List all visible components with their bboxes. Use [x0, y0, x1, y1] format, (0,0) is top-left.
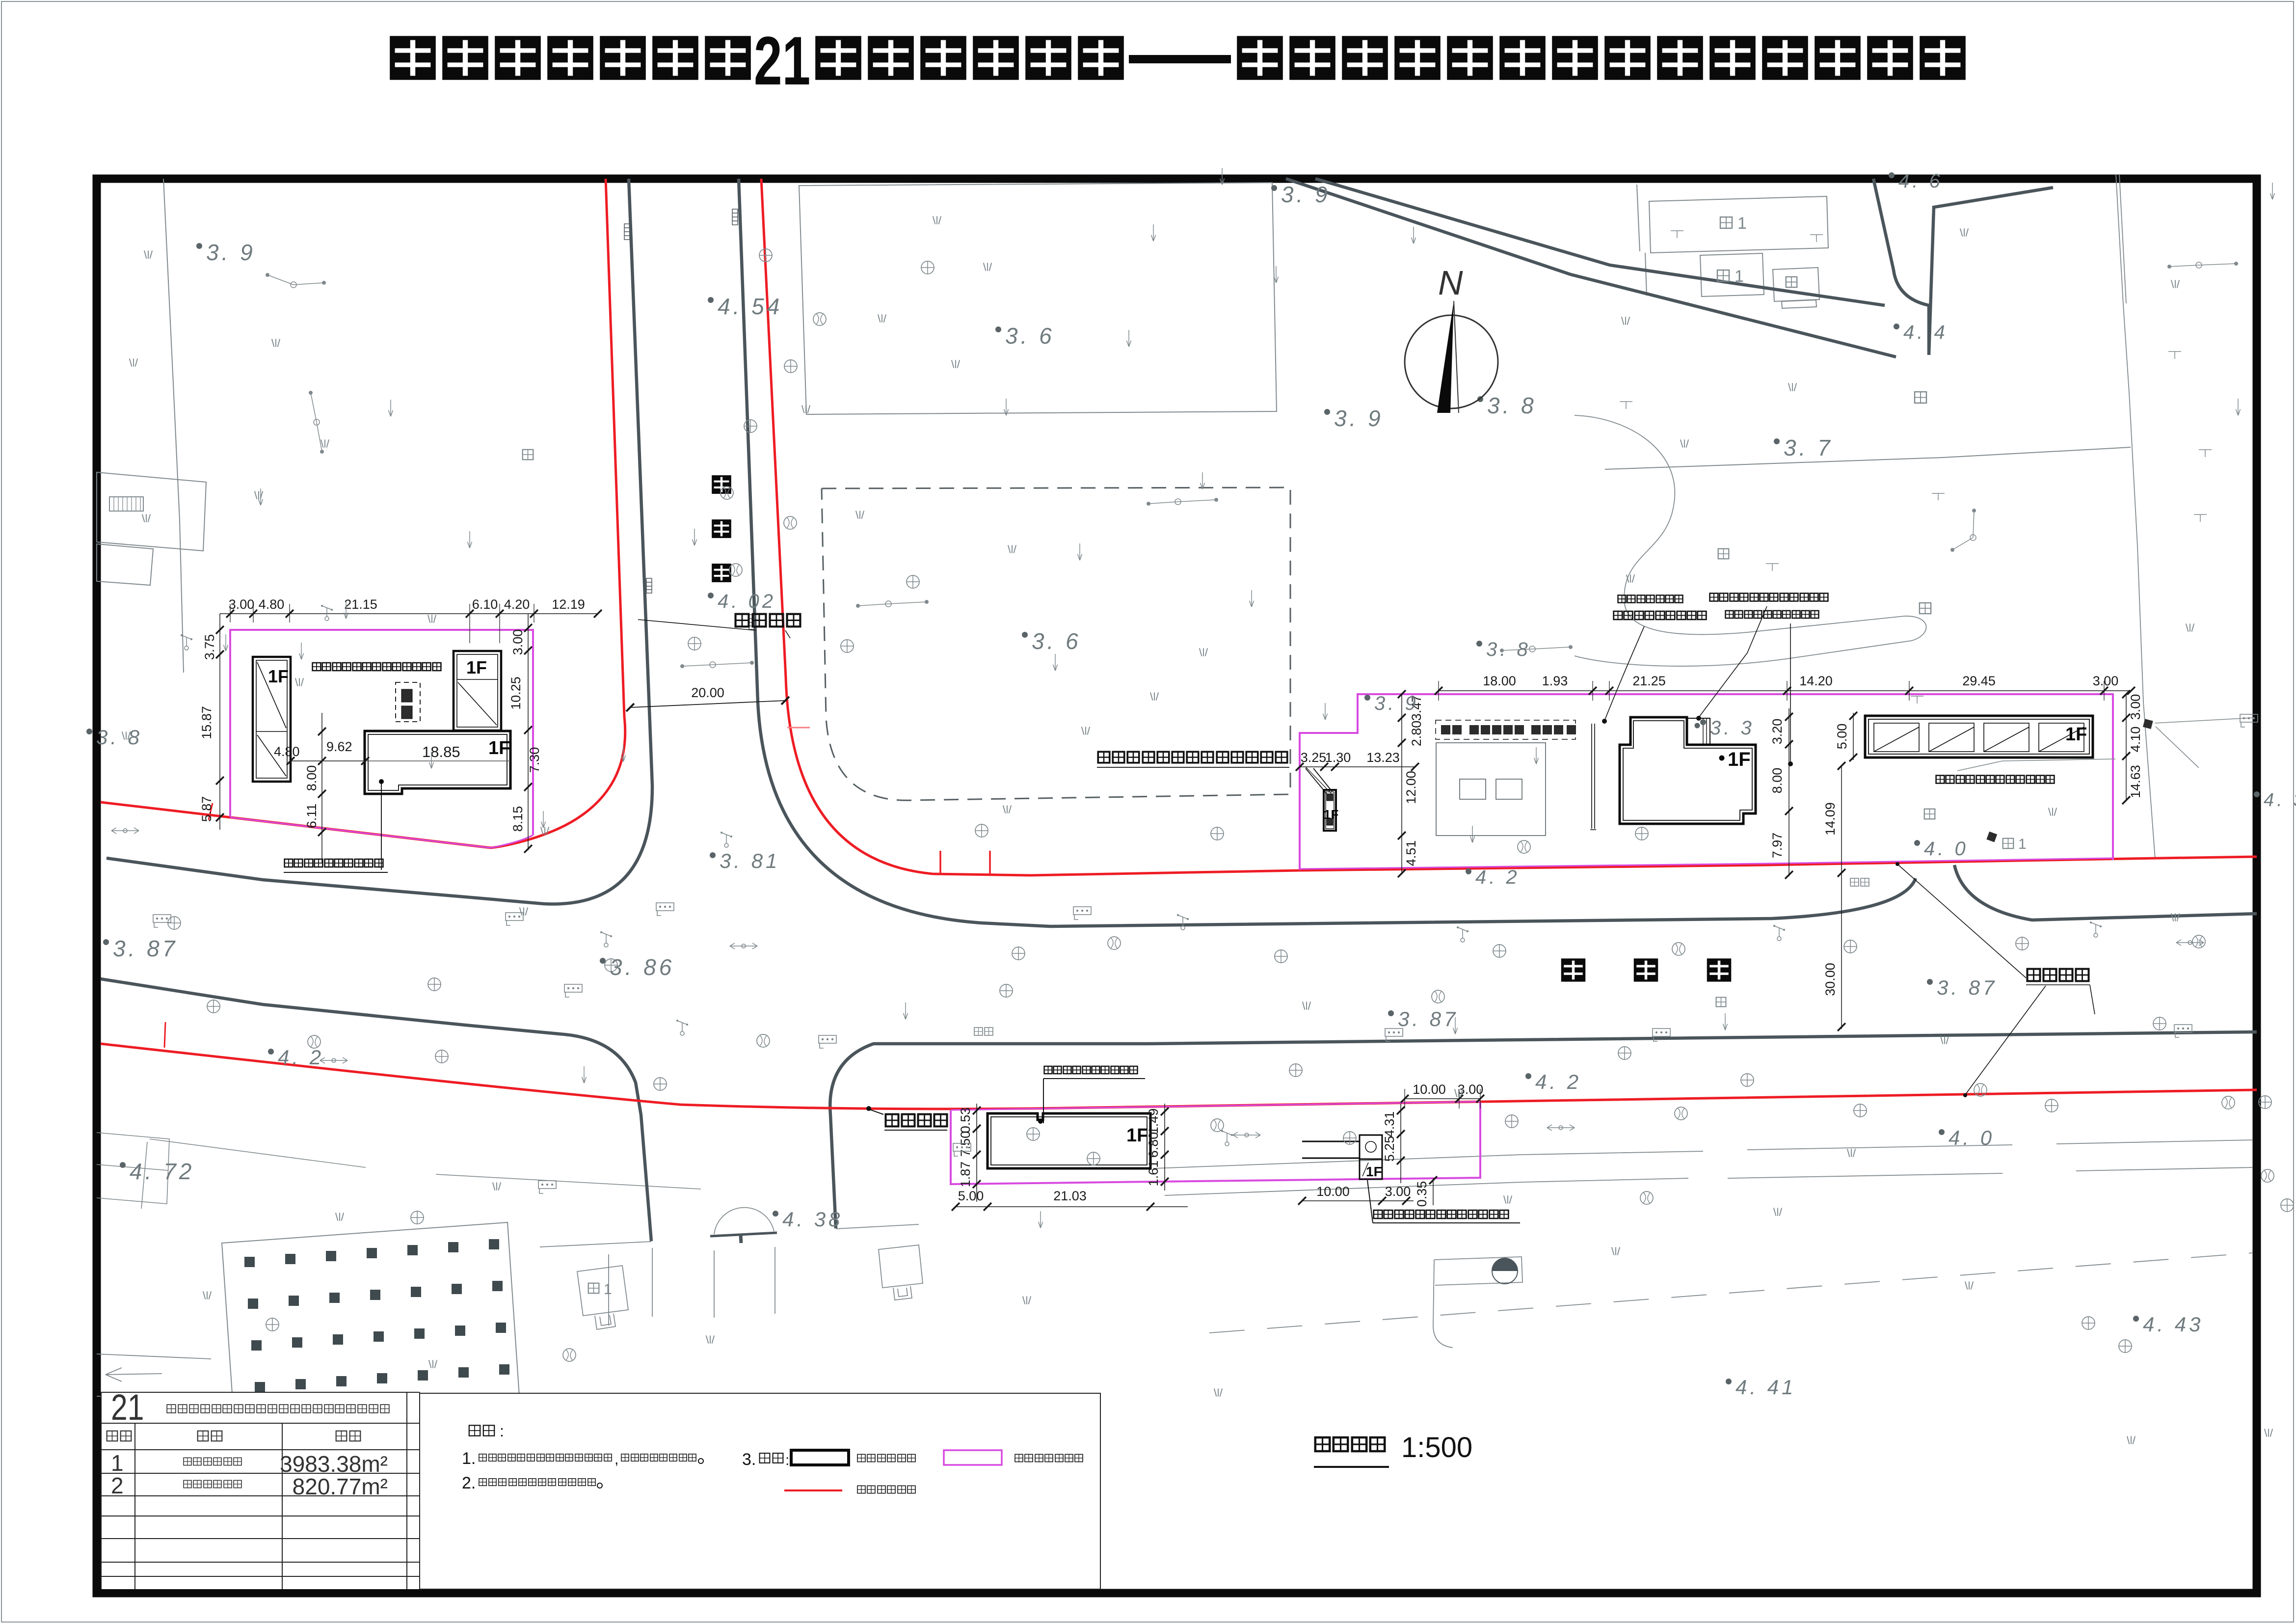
svg-text:2.: 2. [462, 1474, 476, 1492]
svg-text:3.00: 3.00 [1385, 1184, 1411, 1199]
svg-text:,: , [614, 1451, 618, 1467]
svg-text:8.15: 8.15 [510, 806, 525, 832]
svg-text:4. 43: 4. 43 [2143, 1313, 2203, 1336]
svg-text:1.87: 1.87 [958, 1162, 973, 1188]
svg-text:4. 3: 4. 3 [2264, 790, 2296, 811]
svg-text:3.: 3. [742, 1450, 756, 1469]
svg-text:4.31: 4.31 [1382, 1111, 1397, 1137]
svg-text:7.30: 7.30 [527, 747, 542, 773]
svg-text:1F: 1F [1366, 1164, 1382, 1179]
svg-text:1F: 1F [1324, 807, 1338, 822]
svg-text:30.00: 30.00 [1823, 963, 1838, 996]
svg-text:18.00: 18.00 [1483, 674, 1516, 688]
svg-text:1F: 1F [268, 666, 289, 686]
svg-text:3. 87: 3. 87 [113, 936, 178, 961]
svg-text:3. 87: 3. 87 [1937, 976, 1997, 999]
svg-text:3. 8: 3. 8 [1486, 639, 1531, 660]
svg-text:14.63: 14.63 [2128, 765, 2143, 798]
svg-text:3.75: 3.75 [202, 634, 217, 660]
svg-text:1.93: 1.93 [1542, 674, 1568, 688]
svg-text:3. 6: 3. 6 [1032, 628, 1081, 654]
svg-text:9.62: 9.62 [326, 739, 352, 754]
svg-text:4. 2: 4. 2 [278, 1046, 324, 1069]
svg-text:21.03: 21.03 [1053, 1189, 1087, 1203]
svg-text:12.19: 12.19 [552, 597, 585, 612]
svg-text:4. 02: 4. 02 [718, 591, 776, 612]
svg-text:21: 21 [754, 23, 810, 100]
svg-text:5.00: 5.00 [1835, 724, 1849, 750]
svg-text:3. 9: 3. 9 [1334, 406, 1384, 431]
svg-text:3. 9: 3. 9 [1281, 182, 1331, 207]
svg-text:3.20: 3.20 [1770, 719, 1785, 745]
svg-text:1: 1 [2018, 836, 2027, 852]
svg-text:3. 81: 3. 81 [720, 849, 780, 872]
svg-text:21: 21 [111, 1387, 144, 1428]
svg-text:29.45: 29.45 [1962, 674, 1996, 688]
svg-text:4. 0: 4. 0 [1924, 838, 1969, 860]
svg-text:20.00: 20.00 [691, 685, 724, 700]
svg-text:14.20: 14.20 [1799, 674, 1833, 688]
svg-text:3.00: 3.00 [510, 629, 525, 655]
svg-text:1F: 1F [1728, 749, 1751, 770]
svg-text:13.23: 13.23 [1366, 750, 1400, 765]
svg-text:4. 2: 4. 2 [1535, 1070, 1581, 1093]
svg-text:12.00: 12.00 [1404, 771, 1418, 804]
svg-text:3. 9: 3. 9 [206, 240, 256, 265]
svg-text:4. 6: 4. 6 [1898, 170, 1943, 192]
svg-text:0.53: 0.53 [958, 1108, 973, 1134]
svg-text:1.: 1. [462, 1449, 476, 1468]
svg-text:3.25: 3.25 [1301, 750, 1327, 765]
svg-text:18.85: 18.85 [422, 743, 460, 760]
svg-text:3. 3: 3. 3 [1710, 717, 1755, 739]
svg-text:10.00: 10.00 [1413, 1082, 1446, 1097]
svg-text:3. 7: 3. 7 [1784, 435, 1833, 460]
svg-text:6.80: 6.80 [1146, 1132, 1161, 1158]
svg-text:1F: 1F [2065, 724, 2087, 745]
svg-text:0.35: 0.35 [1415, 1181, 1429, 1207]
svg-text:3. 8: 3. 8 [96, 726, 142, 749]
svg-text:3. 6: 3. 6 [1005, 323, 1055, 349]
svg-text:1.49: 1.49 [1146, 1109, 1161, 1135]
svg-text:3. 86: 3. 86 [610, 954, 674, 980]
svg-text:4. 54: 4. 54 [718, 294, 782, 319]
svg-text:1.30: 1.30 [1325, 750, 1351, 765]
svg-text:5.25: 5.25 [1382, 1136, 1397, 1162]
svg-text::: : [500, 1422, 504, 1440]
svg-text:3.00: 3.00 [2093, 674, 2119, 688]
svg-text:14.09: 14.09 [1823, 802, 1838, 836]
svg-text:4. 0: 4. 0 [1949, 1126, 1995, 1149]
svg-text:4.51: 4.51 [1404, 840, 1418, 866]
svg-text:1F: 1F [488, 738, 510, 758]
svg-text:1: 1 [1737, 214, 1747, 233]
svg-text:6.10: 6.10 [472, 597, 498, 612]
svg-text:5.00: 5.00 [958, 1189, 984, 1203]
svg-text:4. 38: 4. 38 [782, 1208, 843, 1231]
svg-text:3. 87: 3. 87 [1398, 1007, 1458, 1030]
svg-text:1.61: 1.61 [1146, 1161, 1161, 1187]
svg-text:4. 72: 4. 72 [130, 1159, 194, 1184]
svg-text:3983.38m²: 3983.38m² [280, 1451, 388, 1477]
svg-text:2: 2 [111, 1473, 124, 1498]
svg-text:10.25: 10.25 [508, 677, 523, 710]
svg-text:1: 1 [1735, 267, 1744, 286]
svg-text:1F: 1F [1126, 1125, 1148, 1146]
svg-text:21.25: 21.25 [1632, 674, 1666, 688]
svg-text:8.00: 8.00 [1770, 768, 1785, 794]
svg-text:3.00: 3.00 [229, 597, 255, 612]
svg-text:2.80: 2.80 [1409, 721, 1424, 747]
svg-text:4.10: 4.10 [2128, 727, 2143, 753]
svg-text:3.00: 3.00 [2128, 694, 2143, 720]
svg-text:15.87: 15.87 [199, 706, 214, 739]
svg-text:4. 41: 4. 41 [1735, 1376, 1796, 1399]
svg-text:1: 1 [111, 1450, 124, 1476]
svg-text:4. 4: 4. 4 [1903, 322, 1948, 343]
svg-text:8.00: 8.00 [304, 765, 319, 791]
svg-text:820.77m²: 820.77m² [293, 1474, 388, 1499]
svg-text:4. 2: 4. 2 [1475, 866, 1520, 888]
svg-text:7.97: 7.97 [1770, 833, 1785, 859]
svg-text:10.00: 10.00 [1316, 1184, 1350, 1199]
svg-text:1F: 1F [466, 657, 487, 677]
svg-text:N: N [1438, 264, 1463, 302]
svg-text::: : [785, 1452, 789, 1468]
svg-text:1:500: 1:500 [1401, 1432, 1472, 1463]
svg-text:4.80: 4.80 [274, 744, 300, 759]
svg-text:4.80: 4.80 [259, 597, 285, 612]
svg-text:1: 1 [604, 1281, 612, 1298]
svg-text:4.20: 4.20 [504, 597, 530, 612]
svg-text:21.15: 21.15 [344, 597, 377, 612]
svg-text:3. 8: 3. 8 [1487, 393, 1537, 418]
svg-text:5.87: 5.87 [199, 796, 214, 822]
svg-text:6.11: 6.11 [304, 804, 319, 829]
svg-text:3. 9: 3. 9 [1374, 693, 1419, 714]
